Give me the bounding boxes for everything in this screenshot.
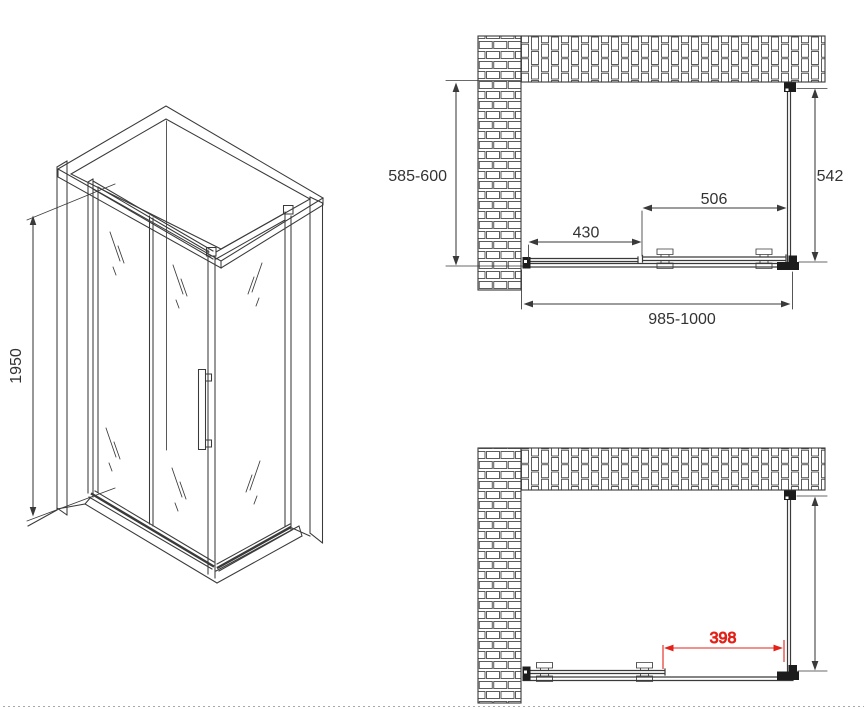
front-frame: [88, 179, 215, 578]
side-panel-open: [788, 500, 791, 671]
bottom-rail-closed: [523, 264, 793, 268]
depth-dim-arrow-up: [453, 83, 460, 93]
height-dimension: 1950: [8, 184, 115, 521]
roller-left-closed: [657, 249, 673, 269]
height-dim-extension-lines: [27, 184, 115, 521]
side-panel-frame: [216, 212, 292, 571]
shower-enclosure-technical-drawing: 1950 585-600 542: [0, 0, 867, 709]
wall-profile-notch-open: [524, 671, 527, 674]
opening-dim-arrow-right: [774, 645, 784, 652]
depth-dim-arrow-down: [453, 256, 460, 266]
door-dim-arrow-right: [777, 205, 787, 212]
roller-right-closed: [756, 249, 772, 269]
side-panel-dimension-open: [797, 496, 827, 671]
total-dim-extensions: [522, 270, 793, 309]
brick-wall-top-closed: [521, 36, 825, 82]
side-dim-arrow-up-open: [812, 497, 819, 507]
roller-left-open: [537, 663, 553, 682]
side-dim-arrow-down-open: [812, 661, 819, 671]
sliding-door-closed: [643, 255, 787, 262]
glass-shine-marks: [106, 232, 262, 511]
plan-view-closed: 585-600 542 506 430 985-: [388, 36, 843, 328]
height-dim-label: 1950: [8, 348, 25, 384]
door-handle: [199, 370, 212, 450]
door-width-dim-label: 506: [701, 191, 728, 208]
roller-right-open: [637, 663, 653, 682]
side-dim-extensions-open: [797, 496, 827, 671]
height-dim-arrow-down: [30, 507, 37, 517]
total-dim-arrow-right: [781, 301, 791, 308]
opening-width-dim-label: 398: [710, 630, 737, 647]
brick-wall-left-open: [478, 448, 521, 703]
fixed-section-dimension: 430: [529, 225, 642, 260]
side-dim-arrow-down: [812, 252, 819, 262]
door-section-dimension: 506: [642, 191, 787, 256]
wall-profile-notch-closed: [524, 260, 527, 263]
depth-dim-label: 585-600: [388, 168, 447, 185]
right-wall-band: [310, 197, 323, 543]
plan-view-open: 398: [478, 448, 827, 703]
brick-wall-top-open: [521, 448, 825, 490]
side-panel-dimension: 542: [797, 89, 843, 263]
side-panel-closed: [788, 92, 791, 262]
door-dim-arrow-left: [643, 205, 653, 212]
side-panel-bracket-notch-closed: [786, 89, 789, 92]
opening-dim-arrow-left: [664, 645, 674, 652]
clear-opening-dimension: 398: [663, 630, 784, 669]
left-wall-band: [28, 161, 67, 526]
side-panel-bracket-notch-open: [786, 497, 789, 500]
fixed-dim-arrow-left: [529, 239, 539, 246]
drawing-svg: 1950 585-600 542: [0, 0, 867, 709]
isometric-view: 1950: [8, 106, 323, 583]
fixed-panel-closed: [531, 257, 638, 263]
total-width-dim-label: 985-1000: [648, 311, 716, 328]
side-panel-dim-label: 542: [817, 168, 844, 185]
fixed-dim-arrow-right: [632, 239, 642, 246]
total-width-dimension: 985-1000: [522, 270, 793, 328]
fixed-panel-dim-label: 430: [573, 225, 600, 242]
sliding-door-open: [531, 669, 665, 675]
total-dim-arrow-left: [524, 301, 534, 308]
side-dim-arrow-up: [812, 89, 819, 99]
brick-wall-left-closed: [478, 36, 521, 290]
bottom-rail-open: [523, 677, 793, 681]
